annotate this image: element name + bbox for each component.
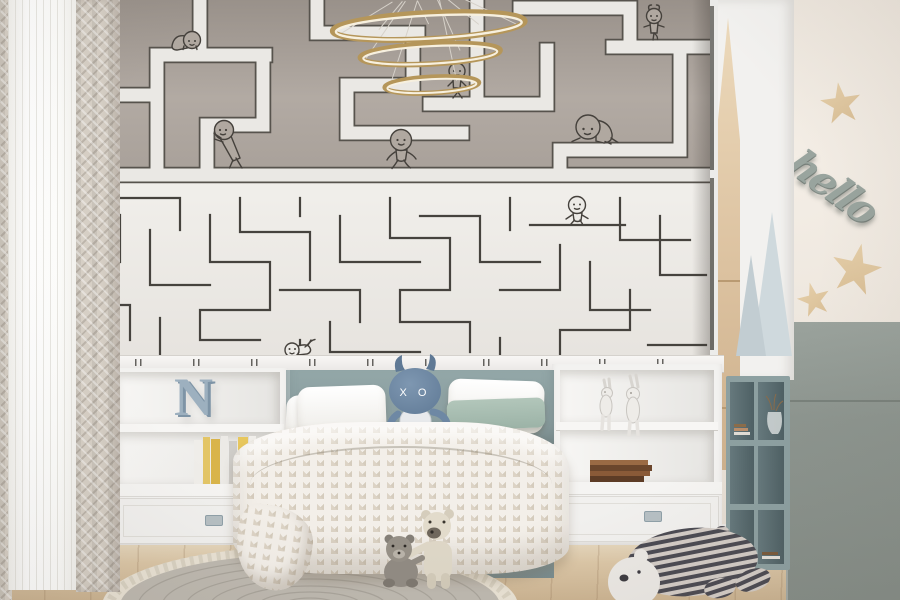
ring-chandelier xyxy=(320,0,540,104)
doll-face-text: X O xyxy=(400,387,431,399)
decor-letter-n: N xyxy=(174,370,213,424)
striped-bear-cushion xyxy=(600,520,780,600)
lower-wall xyxy=(85,178,710,368)
cubby-book xyxy=(734,424,746,427)
wall-corner-shadow xyxy=(692,0,710,368)
book-spine xyxy=(194,440,202,484)
duvet-fold xyxy=(250,446,552,484)
bear-nose xyxy=(620,575,629,582)
doll-horn xyxy=(426,354,436,371)
sheer-curtain xyxy=(8,0,80,590)
drawer-handle xyxy=(205,515,223,526)
right-shelf-unit xyxy=(552,364,722,545)
gray-teddy-bear xyxy=(383,535,422,588)
wardrobe-panel xyxy=(786,322,900,600)
teddy-bears xyxy=(372,505,472,597)
doll-horn xyxy=(395,355,405,372)
wardrobe-seam xyxy=(786,400,900,402)
book-spine xyxy=(203,437,210,484)
bear-eye xyxy=(637,570,640,573)
front-rail xyxy=(552,482,722,495)
curtain-panel xyxy=(76,0,120,592)
book-spine xyxy=(221,436,228,484)
book-spine xyxy=(211,439,220,484)
gold-rings xyxy=(332,8,528,98)
niche-shelf xyxy=(716,280,740,282)
bedroom-photo: hello xyxy=(0,0,900,600)
book-stack xyxy=(590,460,652,482)
bunny-figurines xyxy=(592,372,662,436)
